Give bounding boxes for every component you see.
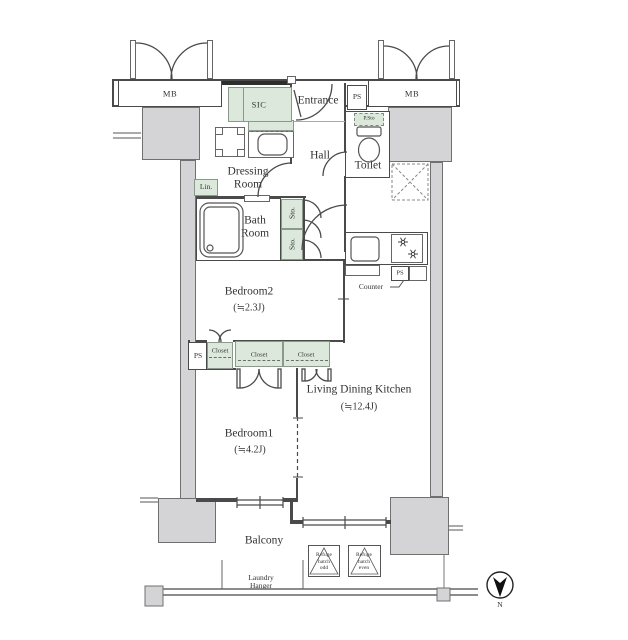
mb-right-door-leaf-2 (449, 40, 455, 79)
railing-post-left (145, 586, 163, 606)
sliding-partition (293, 417, 303, 478)
wall-bedroom1-bottom-a (196, 498, 237, 502)
wall-above-sic (222, 81, 292, 85)
entrance-door-leaf (287, 76, 296, 84)
label-counter: Counter (359, 283, 383, 291)
label-p-sto: P.Sto (363, 116, 374, 123)
label-laundry-line2: Hanger (248, 582, 273, 590)
wall-ldk-bottom-b (386, 520, 391, 524)
label-bath-line1: Bath (241, 214, 269, 227)
wall-stub-top-left (113, 133, 141, 138)
label-ldk: Living Dining Kitchen (307, 384, 412, 397)
compass-icon (487, 572, 513, 598)
label-entrance: Entrance (298, 95, 339, 108)
label-ps-kitchen: PS (396, 269, 403, 276)
closet-left-door-post-1 (237, 369, 240, 388)
closet-bifold-pole (209, 357, 231, 358)
mb-right-door-arc-1 (384, 46, 417, 79)
label-bedroom2-size: (≒2.3J) (233, 303, 264, 314)
wall-right (430, 162, 443, 497)
mb-left-door-arc-1 (136, 43, 172, 79)
closet-right-door-arc-2 (316, 369, 328, 381)
ldk-door-arc (302, 205, 347, 250)
closet-right-door-arc-1 (305, 369, 317, 381)
wall-band-left-edge (112, 79, 114, 107)
label-refuge-odd: Refuge hatch odd (316, 552, 332, 572)
label-dressing-line2: Room (228, 178, 269, 191)
pillar-top-left (142, 107, 200, 160)
label-closet-bifold: Closet (212, 347, 229, 354)
label-hall: Hall (310, 150, 330, 163)
closet-left-door-arc-1 (240, 369, 259, 388)
closet-right-door-post-1 (302, 369, 305, 381)
mb-left-door-leaf-1 (130, 40, 136, 79)
wall-bedroom1-right-lower (296, 478, 298, 502)
label-ldk-size: (≒12.4J) (341, 402, 377, 413)
label-closet-right: Closet (298, 351, 315, 358)
pillar-bottom-left (158, 498, 216, 543)
label-sto-lower: Sto. (288, 238, 297, 250)
pillar-bottom-right (390, 497, 449, 555)
counter-pointer-line (390, 280, 404, 287)
sto-door-fan-1 (303, 200, 321, 218)
wall-band-right-edge (459, 79, 461, 107)
floor-plan: MB MB SIC Entrance PS P.Sto Toilet Hall … (0, 0, 628, 640)
label-refuge-odd-line1: Refuge (316, 552, 332, 559)
label-laundry-hanger: Laundry Hanger (248, 574, 273, 591)
label-dressing-room: Dressing Room (228, 165, 269, 190)
label-bedroom1: Bedroom1 (225, 428, 274, 441)
closet-right-pole (286, 360, 328, 361)
kitchen-lower-cabinet (345, 265, 380, 276)
label-bedroom2: Bedroom2 (225, 286, 274, 299)
label-refuge-odd-line2: hatch (316, 559, 332, 566)
label-refuge-even-line3: even (356, 565, 372, 572)
closet-left-door-arc-2 (259, 369, 278, 388)
bath-folding-door (244, 195, 270, 202)
railing-post-right (437, 588, 450, 601)
washer-pan-corner-4 (237, 149, 245, 157)
label-closet-left: Closet (251, 351, 268, 358)
mb-left-door-leaf-2 (207, 40, 213, 79)
pillar-top-right (388, 107, 452, 162)
label-bath-line2: Room (241, 227, 269, 240)
balcony-railing (150, 589, 478, 595)
washer-pan-corner-2 (237, 127, 245, 135)
closet-right-door-post-2 (328, 369, 331, 381)
mb-right-door-leaf-1 (378, 40, 384, 79)
counter-slab (409, 266, 427, 281)
bedroom1-window (237, 496, 283, 509)
ldk-window (303, 516, 386, 529)
label-mb-left: MB (163, 89, 177, 98)
mb-left-door-arc-2 (171, 43, 207, 79)
label-ps-top: PS (353, 93, 361, 101)
mb-right-door-arc-2 (416, 46, 449, 79)
wall-sto-front (303, 198, 305, 260)
label-refuge-odd-line3: odd (316, 565, 332, 572)
wall-stub-right (449, 526, 463, 530)
label-refuge-even: Refuge hatch even (356, 552, 372, 572)
closet-bifold-arc-1 (209, 330, 221, 342)
wall-bedroom1-right-upper (296, 368, 298, 417)
washer-pan-corner-1 (215, 127, 223, 135)
label-balcony: Balcony (245, 535, 283, 548)
sto-door-fan-2 (303, 220, 321, 238)
label-mb-right: MB (405, 89, 419, 98)
label-bedroom1-size: (≒4.2J) (234, 445, 265, 456)
label-ps-mid: PS (194, 352, 202, 360)
label-bath-room: Bath Room (241, 214, 269, 239)
label-lin: Lin. (200, 183, 212, 191)
vanity-cabinet (248, 131, 294, 158)
sic-divider (243, 87, 244, 122)
closet-left-door-post-2 (278, 369, 281, 388)
sto-door-fan-3 (303, 240, 321, 258)
label-dressing-line1: Dressing (228, 165, 269, 178)
kitchen-stove-box (391, 234, 423, 263)
washer-pan-corner-3 (215, 149, 223, 157)
label-compass-n: N (497, 601, 502, 609)
wall-left (180, 160, 196, 500)
label-refuge-even-line2: hatch (356, 559, 372, 566)
closet-bifold-arc-2 (219, 330, 231, 342)
wall-ldk-bottom-a (290, 520, 303, 524)
entrance-step-line (292, 121, 345, 122)
closet-left-pole (238, 360, 280, 361)
label-toilet: Toilet (355, 160, 382, 173)
label-sto-upper: Sto. (288, 207, 297, 219)
label-refuge-even-line1: Refuge (356, 552, 372, 559)
overhead-hatch-icon (392, 164, 428, 200)
closet-bifold-bedroom2 (207, 342, 233, 369)
wall-stub-bottom-left (140, 498, 158, 502)
label-sic: SIC (252, 100, 267, 109)
